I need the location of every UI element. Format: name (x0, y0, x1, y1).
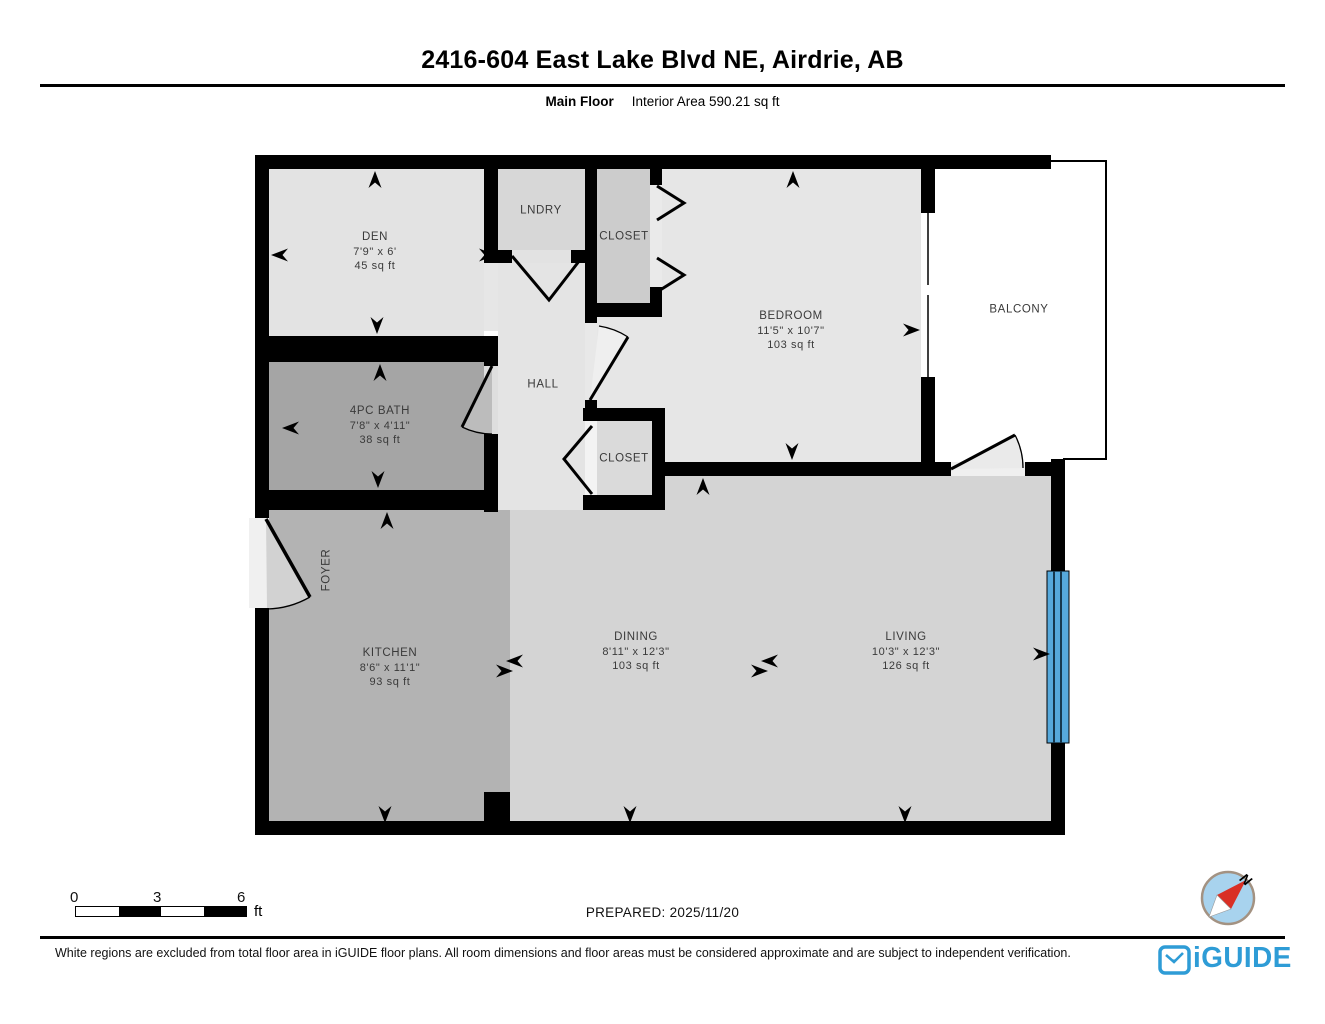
dining-living-floor (510, 510, 1051, 821)
iguide-logo-text: iGUIDE (1193, 942, 1292, 975)
room-label-foyer: FOYER (320, 549, 335, 592)
room-label-hall: HALL (527, 378, 558, 393)
room-label-lndry: LNDRY (520, 204, 562, 219)
floorplan-svg: N (0, 0, 1325, 1024)
room-label-den: DEN 7'9" x 6' 45 sq ft (353, 230, 396, 274)
disclaimer-text: White regions are excluded from total fl… (55, 946, 1095, 960)
footer-divider (40, 936, 1285, 939)
room-label-kitchen: KITCHEN 8'6" x 11'1" 93 sq ft (360, 646, 421, 690)
scale-tick-6: 6 (237, 889, 245, 906)
room-label-dining: DINING 8'11" x 12'3" 103 sq ft (602, 630, 669, 674)
sliding-window-blue (1047, 571, 1069, 743)
room-label-bath: 4PC BATH 7'8" x 4'11" 38 sq ft (350, 404, 411, 448)
room-label-living: LIVING 10'3" x 12'3" 126 sq ft (872, 630, 940, 674)
floorplan-page: 2416-604 East Lake Blvd NE, Airdrie, AB … (0, 0, 1325, 1024)
scale-tick-3: 3 (153, 889, 161, 906)
room-label-closet-bottom: CLOSET (599, 452, 649, 467)
scale-tick-0: 0 (70, 889, 78, 906)
room-label-bedroom: BEDROOM 11'5" x 10'7" 103 sq ft (757, 309, 824, 353)
room-label-balcony: BALCONY (989, 303, 1048, 318)
room-label-closet-top: CLOSET (599, 230, 649, 245)
living-upper-floor (652, 476, 1051, 510)
prepared-date: PREPARED: 2025/11/20 (0, 905, 1325, 920)
iguide-logo: iGUIDE (1157, 942, 1296, 975)
